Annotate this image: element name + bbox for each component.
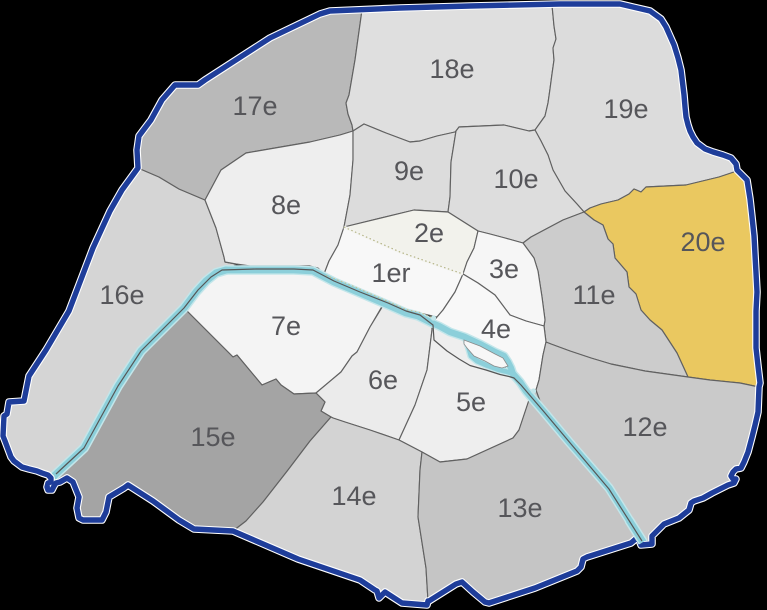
svg-text:20e: 20e — [680, 227, 725, 257]
svg-text:19e: 19e — [603, 94, 648, 124]
svg-text:5e: 5e — [456, 387, 486, 417]
svg-text:2e: 2e — [414, 218, 444, 248]
svg-text:10e: 10e — [493, 164, 538, 194]
svg-text:18e: 18e — [429, 54, 474, 84]
svg-text:3e: 3e — [489, 254, 519, 284]
svg-text:8e: 8e — [271, 190, 301, 220]
svg-text:9e: 9e — [394, 156, 424, 186]
svg-text:7e: 7e — [271, 311, 301, 341]
svg-text:6e: 6e — [368, 365, 398, 395]
svg-text:1er: 1er — [371, 258, 410, 288]
svg-text:14e: 14e — [331, 481, 376, 511]
svg-text:4e: 4e — [481, 314, 511, 344]
svg-text:16e: 16e — [99, 280, 144, 310]
svg-text:11e: 11e — [572, 280, 615, 310]
svg-text:13e: 13e — [497, 493, 542, 523]
svg-text:12e: 12e — [622, 412, 667, 442]
svg-text:17e: 17e — [232, 91, 277, 121]
svg-text:15e: 15e — [190, 422, 235, 452]
